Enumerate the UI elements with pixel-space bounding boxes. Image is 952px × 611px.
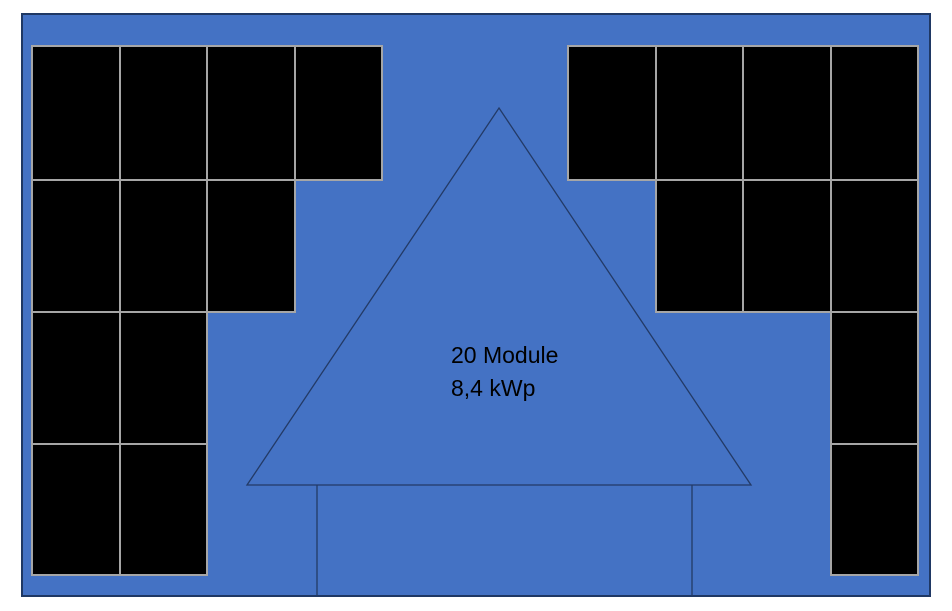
solar-module	[119, 443, 208, 576]
solar-module	[294, 45, 383, 181]
solar-module	[830, 311, 919, 445]
solar-module	[31, 45, 121, 181]
solar-module	[567, 45, 657, 181]
solar-module	[655, 45, 744, 181]
annotation-label: 20 Module 8,4 kWp	[451, 339, 558, 405]
solar-module	[742, 179, 832, 313]
solar-module	[655, 179, 744, 313]
solar-module	[206, 45, 296, 181]
solar-module	[830, 179, 919, 313]
solar-module	[119, 45, 208, 181]
power-label: 8,4 kWp	[451, 372, 558, 405]
slide-canvas: 20 Module 8,4 kWp	[0, 0, 952, 611]
solar-module	[206, 179, 296, 313]
solar-module	[830, 443, 919, 576]
module-count-label: 20 Module	[451, 339, 558, 372]
solar-module	[31, 443, 121, 576]
solar-module	[742, 45, 832, 181]
solar-module	[830, 45, 919, 181]
solar-module	[119, 311, 208, 445]
solar-module	[31, 179, 121, 313]
solar-module	[31, 311, 121, 445]
solar-module	[119, 179, 208, 313]
